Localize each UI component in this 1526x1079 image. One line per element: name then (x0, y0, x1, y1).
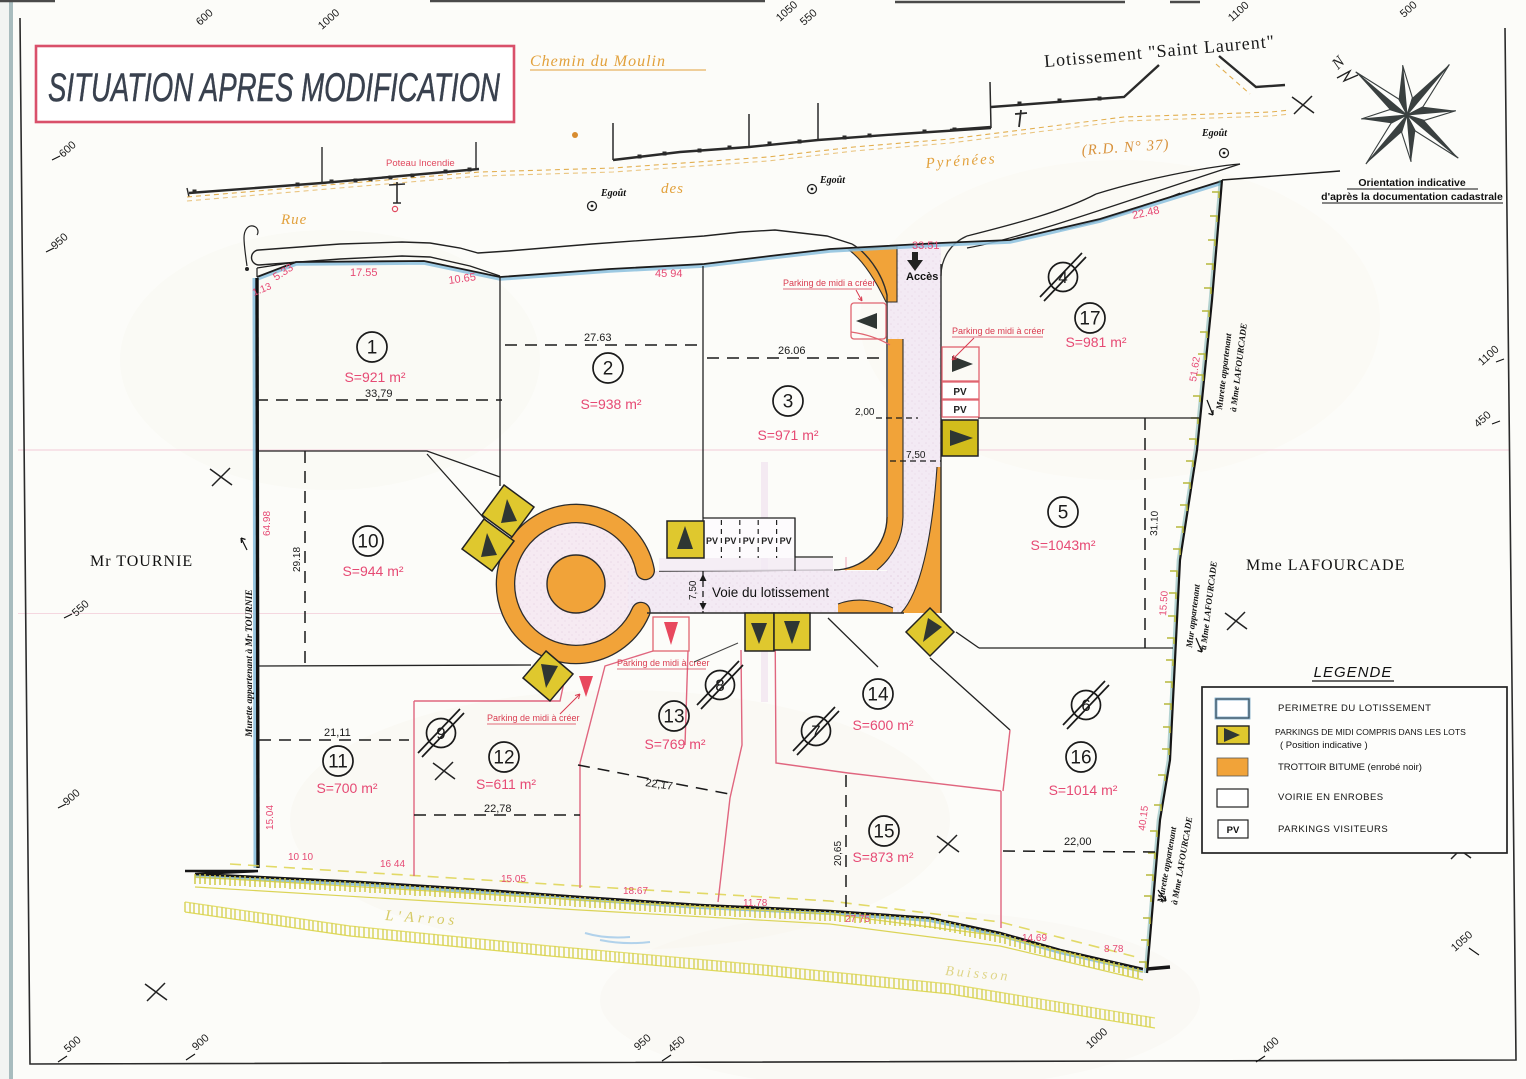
svg-text:Parking de midi à créer: Parking de midi à créer (487, 713, 580, 723)
svg-text:S=981 m²: S=981 m² (1065, 334, 1126, 350)
svg-text:PERIMETRE DU LOTISSEMENT: PERIMETRE DU LOTISSEMENT (1278, 703, 1431, 714)
svg-text:15.05: 15.05 (501, 874, 526, 885)
svg-text:16 44: 16 44 (380, 859, 405, 870)
svg-text:22,78: 22,78 (484, 803, 512, 815)
svg-text:Orientation indicative: Orientation indicative (1358, 177, 1466, 189)
svg-text:PV: PV (1227, 825, 1240, 836)
svg-text:Parking de midi à créer: Parking de midi à créer (617, 658, 710, 668)
svg-text:2,00: 2,00 (855, 407, 875, 418)
svg-text:2: 2 (603, 359, 614, 380)
svg-text:5: 5 (1058, 503, 1069, 524)
svg-text:10: 10 (357, 532, 378, 553)
svg-text:PV: PV (953, 405, 967, 416)
svg-text:S=1043m²: S=1043m² (1031, 537, 1096, 553)
svg-text:PV: PV (780, 536, 792, 546)
svg-text:31.10: 31.10 (1149, 510, 1161, 536)
svg-text:Parking de midi a créer: Parking de midi a créer (783, 278, 876, 288)
svg-text:21,11: 21,11 (324, 727, 351, 739)
svg-text:S=938 m²: S=938 m² (580, 396, 641, 412)
svg-text:Egoût: Egoût (600, 188, 627, 199)
svg-text:Voie du lotissement: Voie du lotissement (712, 585, 829, 600)
svg-text:7,50: 7,50 (688, 580, 699, 600)
svg-text:15.04: 15.04 (265, 805, 276, 830)
svg-text:PV: PV (706, 536, 718, 546)
svg-text:Mme LAFOURCADE: Mme LAFOURCADE (1246, 557, 1405, 574)
svg-text:29.18: 29.18 (292, 547, 303, 572)
svg-text:15: 15 (873, 822, 894, 843)
svg-text:17.55: 17.55 (350, 267, 378, 279)
svg-text:TROTTOIR BITUME (enrobé noi: TROTTOIR BITUME (enrobé noir) (1278, 762, 1422, 773)
svg-text:LEGENDE: LEGENDE (1314, 664, 1393, 681)
svg-text:VOIRIE EN ENROBES: VOIRIE EN ENROBES (1278, 792, 1384, 803)
svg-text:Mr TOURNIE: Mr TOURNIE (90, 553, 193, 570)
svg-text:( Position indicative ): ( Position indicative ) (1280, 740, 1368, 751)
svg-text:S=611 m²: S=611 m² (476, 776, 536, 792)
svg-text:PV: PV (743, 536, 755, 546)
svg-text:S=873 m²: S=873 m² (852, 849, 913, 865)
svg-text:45 94: 45 94 (655, 268, 683, 280)
svg-text:33,79: 33,79 (365, 388, 393, 400)
svg-text:8 78: 8 78 (1104, 944, 1124, 955)
svg-text:33.51: 33.51 (912, 240, 940, 252)
svg-text:14: 14 (867, 685, 889, 706)
svg-text:S=944 m²: S=944 m² (342, 563, 403, 579)
svg-text:Egoût: Egoût (1201, 128, 1228, 139)
svg-text:3: 3 (783, 392, 794, 413)
svg-text:Murette appartenant à Mr TOURN: Murette appartenant à Mr TOURNIE (245, 589, 255, 738)
svg-text:Parking de midi à créer: Parking de midi à créer (952, 326, 1045, 336)
svg-text:27 75: 27 75 (845, 914, 870, 925)
svg-text:11.78: 11.78 (743, 898, 768, 909)
svg-text:S=600 m²: S=600 m² (852, 717, 913, 733)
svg-text:16: 16 (1070, 748, 1091, 769)
svg-text:S=700 m²: S=700 m² (316, 780, 377, 796)
svg-text:SITUATION APRES MODIFICATION: SITUATION APRES MODIFICATION (48, 66, 500, 110)
svg-text:Accès: Accès (906, 271, 938, 283)
svg-text:des: des (661, 181, 684, 197)
svg-text:27.63: 27.63 (584, 332, 612, 344)
svg-text:Poteau Incendie: Poteau Incendie (386, 158, 455, 169)
svg-text:13: 13 (663, 707, 684, 728)
svg-text:S=1014 m²: S=1014 m² (1049, 782, 1118, 798)
svg-text:S=921 m²: S=921 m² (344, 369, 405, 385)
svg-text:Rue: Rue (280, 212, 307, 228)
svg-text:11: 11 (328, 752, 348, 773)
svg-text:Chemin du Moulin: Chemin du Moulin (530, 53, 666, 70)
svg-text:20,65: 20,65 (833, 841, 844, 866)
svg-text:PV: PV (761, 536, 773, 546)
svg-text:12: 12 (493, 748, 514, 769)
svg-text:64.98: 64.98 (262, 511, 273, 536)
svg-text:S=769 m²: S=769 m² (644, 736, 705, 752)
svg-text:22,00: 22,00 (1064, 836, 1092, 848)
svg-text:PARKINGS VISITEURS: PARKINGS VISITEURS (1278, 824, 1388, 835)
svg-text:26.06: 26.06 (778, 345, 806, 357)
svg-text:PV: PV (724, 536, 736, 546)
svg-text:14.69: 14.69 (1022, 933, 1047, 944)
svg-text:7,50: 7,50 (906, 450, 926, 461)
svg-text:18.67: 18.67 (623, 886, 648, 897)
svg-text:1: 1 (367, 338, 378, 359)
svg-text:17: 17 (1079, 309, 1100, 330)
svg-text:PV: PV (953, 387, 967, 398)
svg-text:Egoût: Egoût (819, 175, 846, 186)
svg-text:S=971 m²: S=971 m² (757, 427, 818, 443)
svg-text:d'après la documentation ca: d'après la documentation cadastrale (1321, 191, 1503, 203)
svg-text:PARKINGS DE MIDI COMPRIS DANS: PARKINGS DE MIDI COMPRIS DANS LES LOTS (1275, 727, 1466, 737)
svg-text:15.50: 15.50 (1158, 590, 1171, 616)
svg-text:10 10: 10 10 (288, 852, 313, 863)
